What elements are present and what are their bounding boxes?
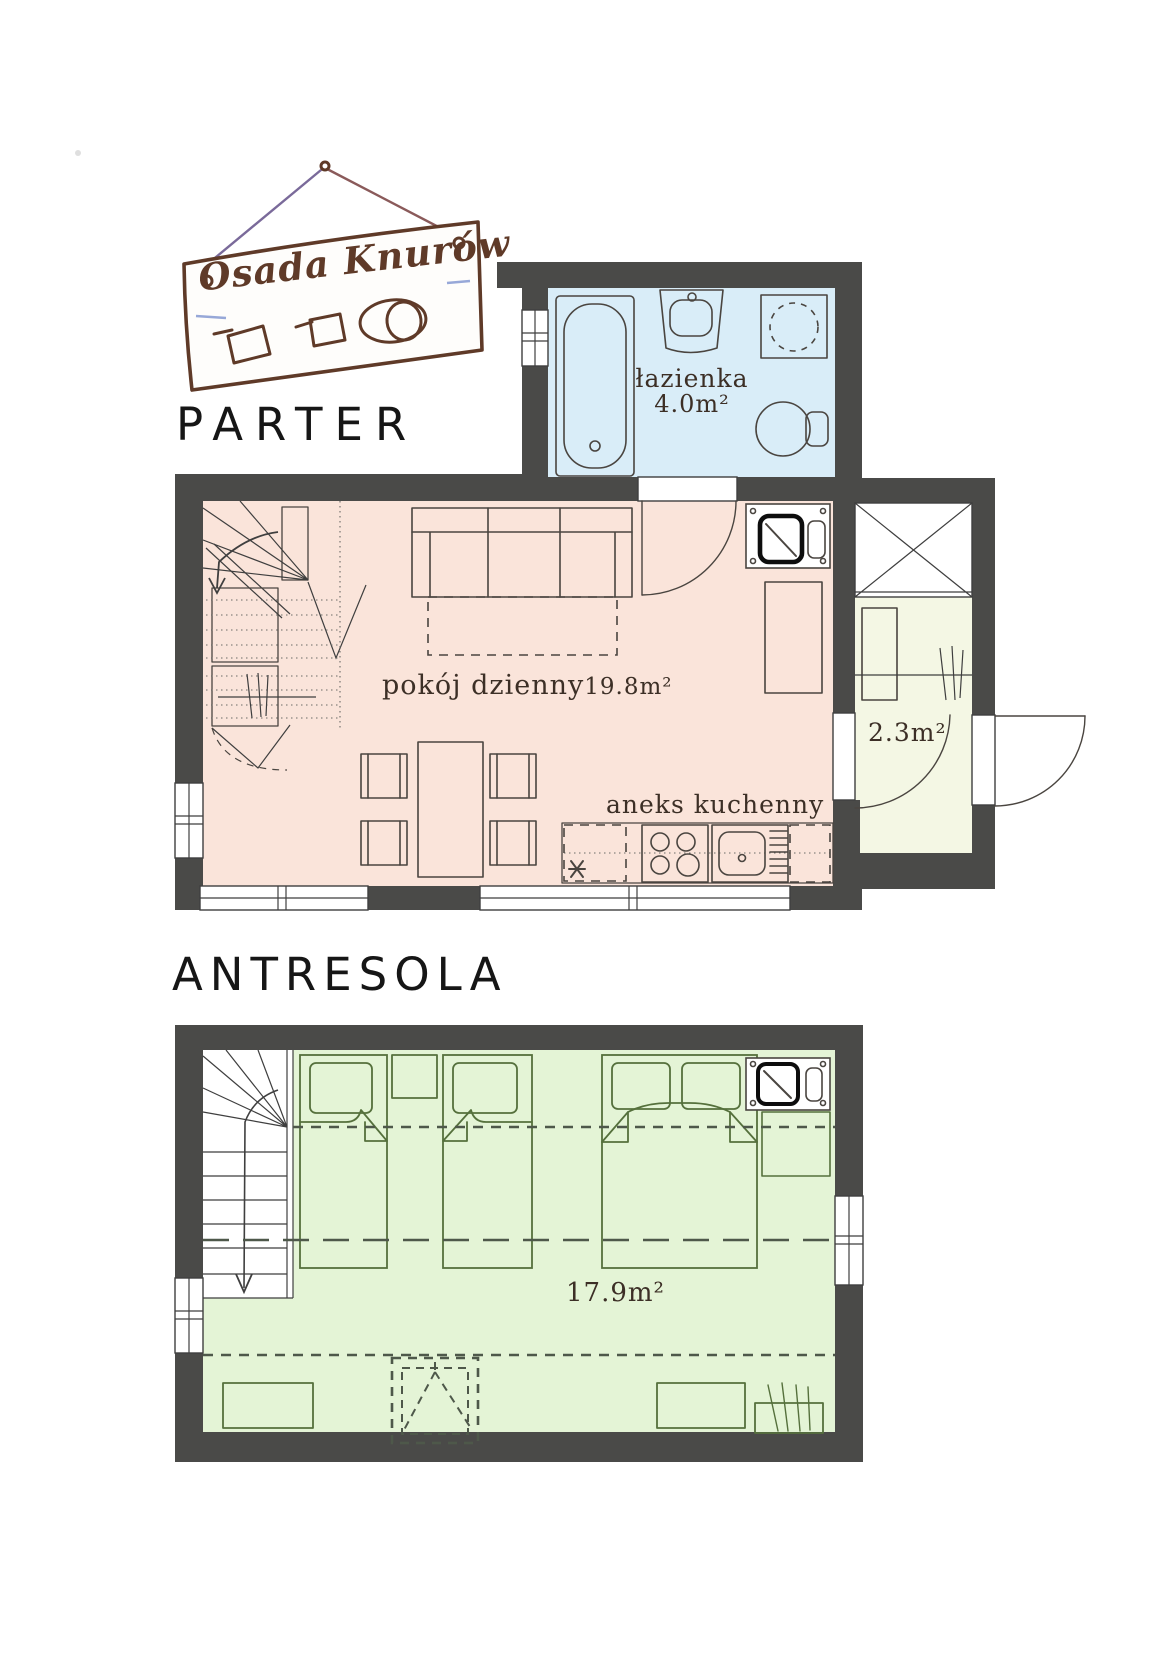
right-window (835, 1196, 863, 1285)
fireplace-flue (746, 1058, 830, 1110)
parter-title: PARTER (176, 398, 418, 451)
left-wall-window (175, 783, 203, 858)
bottom-window-right (480, 886, 790, 910)
kitchen-label: aneks kuchenny (606, 790, 824, 819)
floor-plan-page: Osada Knurów PARTER ANTRESOLA łazienka 4… (0, 0, 1169, 1654)
bathroom-door-threshold (638, 477, 737, 501)
paper-speck (75, 150, 81, 156)
drawer-stack (770, 831, 787, 873)
bathroom-window (522, 310, 548, 366)
entry-door (995, 716, 1085, 806)
single-bed (300, 1055, 387, 1268)
bedroom-area-label: 17.9m² (566, 1278, 665, 1308)
living-room-name: pokój dzienny (382, 670, 584, 701)
hall-door-threshold (833, 713, 855, 800)
living-room-label: pokój dzienny19.8m² (382, 670, 673, 701)
left-window (175, 1278, 203, 1353)
antresola-plan (175, 1025, 863, 1462)
stairwell-void (203, 1050, 293, 1298)
hall-area-label: 2.3m² (868, 718, 947, 747)
technical-shaft (855, 503, 972, 597)
entry-door-threshold (972, 715, 995, 805)
bathroom-label: łazienka 4.0m² (598, 366, 786, 417)
bottom-window-left (200, 886, 368, 910)
single-bed (443, 1055, 532, 1268)
bathroom-area: 4.0m² (598, 392, 786, 417)
living-room-area: 19.8m² (584, 674, 672, 700)
bathroom-name: łazienka (598, 366, 786, 392)
floor-plan-drawing (0, 0, 1169, 1654)
double-bed (602, 1055, 757, 1268)
fireplace-stove (746, 504, 830, 568)
antresola-title: ANTRESOLA (172, 948, 508, 1001)
nail-icon (321, 162, 329, 170)
